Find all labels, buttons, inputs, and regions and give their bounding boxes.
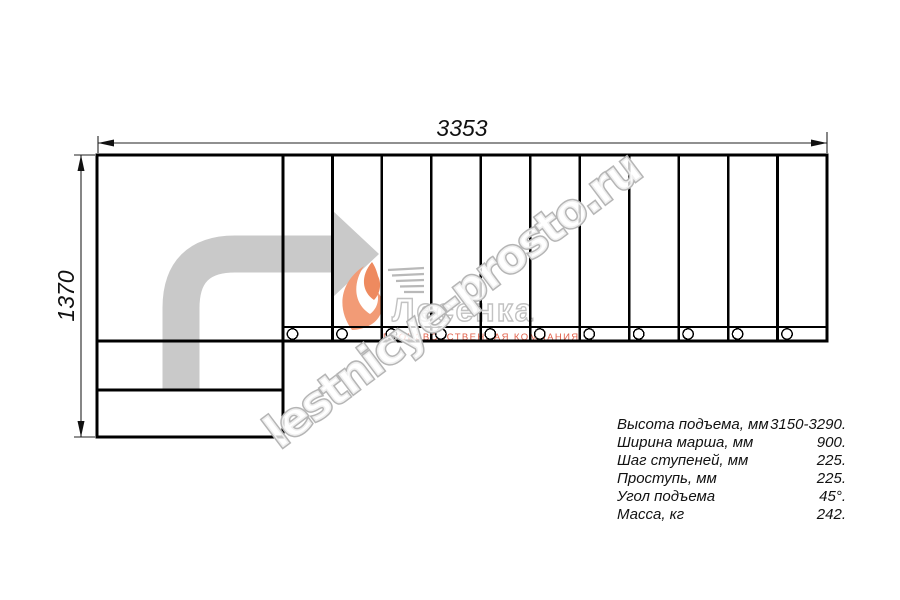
spec-table: Высота подъема, мм 3150-3290. Ширина мар… [617,416,846,524]
height-dimension-label: 1370 [53,270,79,321]
fastener-circle [584,329,594,339]
spec-row: Проступь, мм 225. [617,470,846,488]
drawing-sheet: Лесенка ПРОИЗВОДСТВЕННАЯ КОМПАНИЯ [0,0,900,600]
spec-row: Ширина марша, мм 900. [617,434,846,452]
spec-value: 242. [817,506,846,524]
spec-label: Проступь, мм [617,470,717,488]
fastener-circle [782,329,792,339]
spec-label: Высота подъема, мм [617,416,769,434]
fastener-circle [535,329,545,339]
width-dimension-label: 3353 [436,115,487,141]
watermark: lestnicye-prosto.ru [254,141,650,458]
spec-label: Угол подъема [617,488,715,506]
spec-label: Ширина марша, мм [617,434,753,452]
spec-row: Шаг ступеней, мм 225. [617,452,846,470]
spec-row: Угол подъема 45°. [617,488,846,506]
spec-value: 900. [817,434,846,452]
logo-hatch-lines [388,268,424,292]
spec-value: 45°. [819,488,846,506]
spec-row: Высота подъема, мм 3150-3290. [617,416,846,434]
fastener-circle [732,329,742,339]
spec-label: Масса, кг [617,506,684,524]
spec-value: 225. [817,470,846,488]
fastener-circle [683,329,693,339]
fastener-circle [634,329,644,339]
spec-value: 225. [817,452,846,470]
fastener-circle [337,329,347,339]
spec-value: 3150-3290. [770,416,846,434]
fastener-circle [287,329,297,339]
spec-row: Масса, кг 242. [617,506,846,524]
spec-label: Шаг ступеней, мм [617,452,748,470]
fastener-circle [485,329,495,339]
